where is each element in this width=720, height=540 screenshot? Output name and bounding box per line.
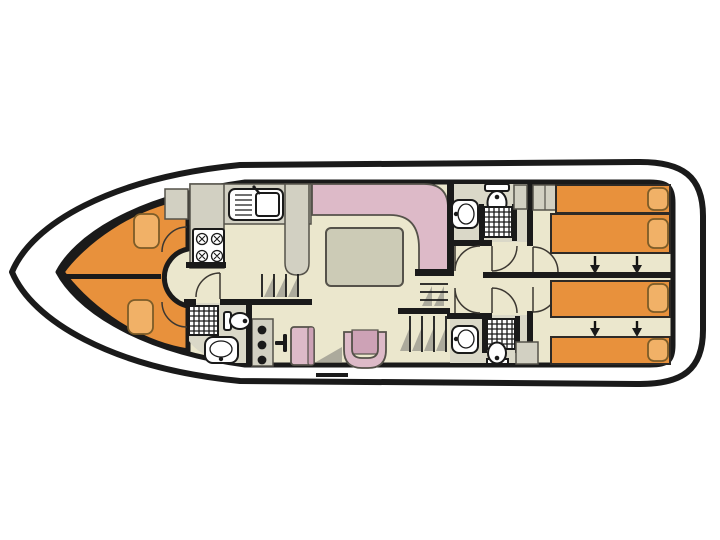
bed-pillow	[648, 188, 668, 210]
bathroom-cabinet	[514, 185, 527, 209]
corner-cabinet	[516, 342, 538, 364]
shower	[189, 306, 218, 335]
bow-corner-cabinet	[165, 189, 188, 219]
armchair-seat	[352, 330, 378, 354]
shower-grid	[484, 207, 512, 237]
lower-stair-wall	[398, 308, 450, 314]
helm-dial	[258, 356, 267, 365]
helm-dial	[258, 326, 267, 335]
helm-seat-back	[308, 327, 314, 365]
u-armchair	[344, 330, 386, 368]
sofa-corridor-wall	[447, 181, 454, 273]
front-bathroom-top-wall-left	[184, 299, 196, 305]
bed-pillow	[648, 284, 668, 312]
bow-pillow-bottom	[128, 300, 153, 334]
front-bathroom-top-wall-right	[220, 299, 312, 305]
helm-dial	[258, 341, 267, 350]
washbasin	[452, 326, 478, 353]
washbasin	[452, 200, 478, 228]
top-cabin-left-wall	[527, 182, 533, 246]
shower	[484, 207, 512, 237]
bed-pillow	[648, 339, 668, 361]
kitchen-sink	[229, 185, 283, 220]
sink-basin	[256, 193, 279, 216]
front-bathroom-right-wall	[246, 300, 252, 366]
boarding-mark	[316, 373, 348, 377]
kitchen-bottom-wall	[186, 262, 226, 268]
stair-cap-wall	[415, 269, 454, 276]
shower-grid	[189, 306, 218, 335]
stove	[193, 229, 224, 265]
top-bathroom-bottom-wall	[447, 240, 492, 246]
throttle-lever-bar	[283, 334, 287, 352]
bow-berth-divider-wall	[60, 274, 161, 279]
saloon-table	[326, 228, 403, 286]
floor-plan-page	[0, 0, 720, 540]
toilet	[224, 312, 250, 330]
washbasin	[205, 337, 238, 363]
bed-pillow	[648, 219, 668, 248]
bow-pillow-top	[134, 214, 159, 248]
breakfast-bar	[285, 184, 309, 275]
cabin-divider-wall	[483, 272, 673, 278]
houseboat-floor-plan	[0, 0, 720, 540]
